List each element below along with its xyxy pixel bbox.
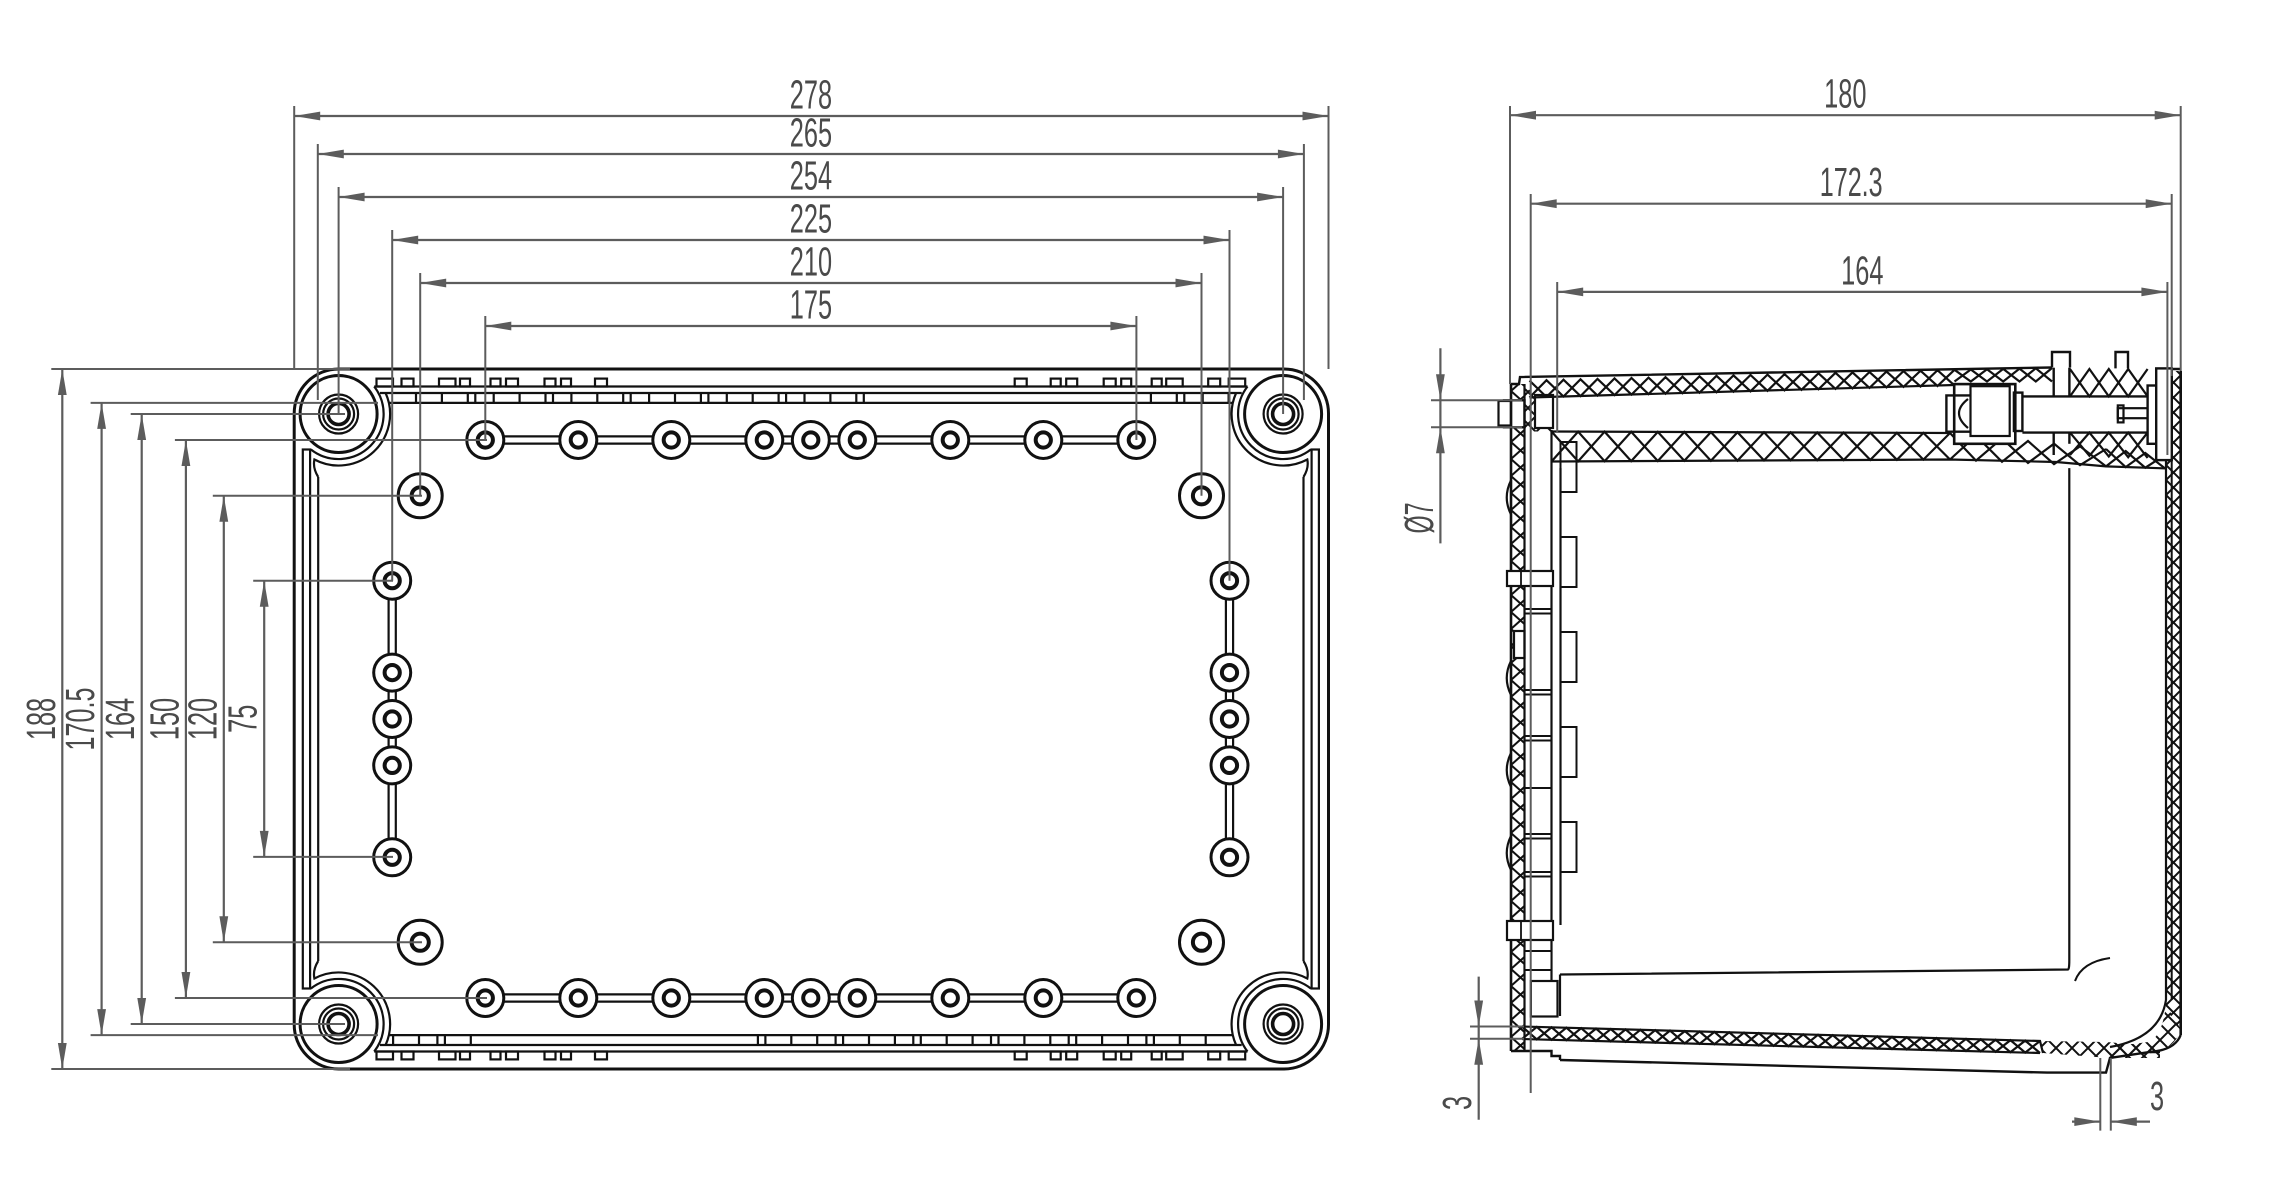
svg-text:225: 225 xyxy=(790,196,832,242)
svg-text:Ø7: Ø7 xyxy=(1396,502,1442,533)
svg-text:164: 164 xyxy=(1841,247,1883,293)
svg-text:210: 210 xyxy=(790,239,832,285)
svg-text:175: 175 xyxy=(790,282,832,328)
svg-text:265: 265 xyxy=(790,110,832,156)
svg-text:164: 164 xyxy=(97,698,143,740)
svg-text:3: 3 xyxy=(1434,1096,1480,1110)
svg-text:120: 120 xyxy=(179,698,225,740)
svg-text:3: 3 xyxy=(2150,1073,2164,1119)
svg-text:75: 75 xyxy=(220,705,266,733)
svg-text:180: 180 xyxy=(1824,71,1866,117)
svg-text:254: 254 xyxy=(790,153,832,199)
svg-text:170.5: 170.5 xyxy=(57,688,103,751)
svg-text:172.3: 172.3 xyxy=(1820,159,1883,205)
